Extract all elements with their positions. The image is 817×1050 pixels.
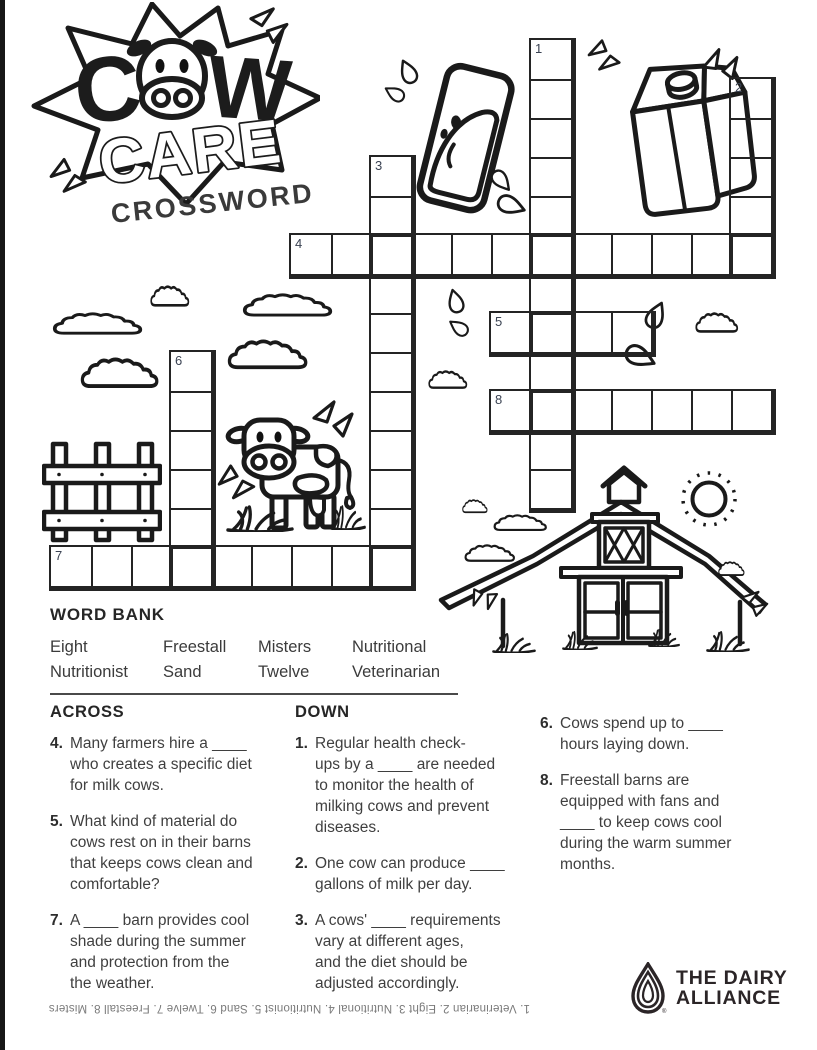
clue-number: 5. bbox=[50, 811, 70, 895]
grid-cell[interactable] bbox=[371, 430, 411, 469]
sparkle-icon bbox=[310, 398, 354, 442]
clue-number: 7. bbox=[50, 910, 70, 994]
word-bank-word: Sand bbox=[163, 663, 258, 682]
cloud-icon bbox=[242, 293, 334, 318]
word-5-across: 5 bbox=[489, 311, 656, 357]
fence-icon bbox=[42, 436, 162, 548]
grid-cell[interactable] bbox=[171, 547, 211, 586]
sun-icon bbox=[672, 464, 746, 538]
clue: 8.Freestall barns are equipped with fans… bbox=[540, 770, 780, 875]
grid-cell[interactable] bbox=[371, 196, 411, 235]
word-bank-word: Nutritionist bbox=[50, 663, 163, 682]
word-bank: WORD BANK EightFreestallMistersNutrition… bbox=[50, 605, 480, 682]
registered-mark: ® bbox=[662, 1008, 667, 1014]
clue: 5.What kind of material do cows rest on … bbox=[50, 811, 295, 895]
clue-column-down: DOWN1.Regular health check- ups by a ___… bbox=[295, 703, 540, 1009]
dairy-alliance-name: THE DAIRY ALLIANCE bbox=[676, 968, 788, 1009]
grid-cell[interactable] bbox=[171, 508, 211, 547]
cell-number: 1 bbox=[535, 42, 542, 55]
grid-cell[interactable] bbox=[731, 118, 771, 157]
cloud-icon bbox=[428, 370, 468, 390]
grid-cell[interactable] bbox=[611, 313, 651, 352]
grid-cell[interactable] bbox=[531, 274, 571, 313]
word-8-across: 8 bbox=[489, 389, 776, 435]
clue-text: One cow can produce ____ gallons of milk… bbox=[315, 853, 505, 895]
grid-cell[interactable] bbox=[371, 235, 411, 274]
cloud-icon bbox=[80, 357, 160, 390]
grid-cell[interactable] bbox=[731, 235, 771, 274]
grid-cell[interactable] bbox=[411, 235, 451, 274]
grass-icon bbox=[492, 632, 536, 653]
cloud-icon bbox=[493, 514, 548, 532]
cell-number: 2 bbox=[735, 81, 742, 94]
cloud-icon bbox=[718, 561, 745, 577]
grass-icon bbox=[706, 630, 750, 652]
word-bank-word: Freestall bbox=[163, 638, 258, 657]
grid-cell[interactable]: 6 bbox=[171, 352, 211, 391]
grid-cell[interactable] bbox=[731, 196, 771, 235]
clue-column-across: ACROSS4.Many farmers hire a ____ who cre… bbox=[50, 703, 295, 1009]
clue: 1.Regular health check- ups by a ____ ar… bbox=[295, 733, 540, 838]
answer-key: 1. Veterinarian 2. Eight 3. Nutritional … bbox=[52, 996, 530, 1014]
clue-number: 8. bbox=[540, 770, 560, 875]
grid-cell[interactable] bbox=[571, 235, 611, 274]
grid-cell[interactable] bbox=[331, 547, 371, 586]
clue-column-heading: ACROSS bbox=[50, 703, 295, 722]
grid-cell[interactable] bbox=[731, 391, 771, 430]
clue-text: Freestall barns are equipped with fans a… bbox=[560, 770, 731, 875]
grid-cell[interactable] bbox=[131, 547, 171, 586]
grid-cell[interactable] bbox=[251, 547, 291, 586]
cell-number: 6 bbox=[175, 354, 182, 367]
worksheet-page: C W CARE CROSSWORD bbox=[0, 0, 817, 1050]
clue: 3.A cows' ____ requirements vary at diff… bbox=[295, 910, 540, 994]
word-bank-word: Misters bbox=[258, 638, 352, 657]
clue-text: Cows spend up to ____ hours laying down. bbox=[560, 713, 723, 755]
grid-cell[interactable] bbox=[531, 79, 571, 118]
word-bank-word: Nutritional bbox=[352, 638, 480, 657]
milk-drop-icon: ® bbox=[628, 962, 668, 1014]
grid-cell[interactable] bbox=[571, 391, 611, 430]
word-7-across: 7 bbox=[49, 545, 416, 591]
clue-text: A ____ barn provides cool shade during t… bbox=[70, 910, 249, 994]
word-bank-divider bbox=[50, 693, 458, 695]
page-edge-line bbox=[0, 0, 5, 1050]
word-bank-word: Eight bbox=[50, 638, 163, 657]
word-bank-word: Twelve bbox=[258, 663, 352, 682]
grid-cell[interactable]: 3 bbox=[371, 157, 411, 196]
clue: 4.Many farmers hire a ____ who creates a… bbox=[50, 733, 295, 796]
cell-number: 4 bbox=[295, 237, 302, 250]
grid-cell[interactable] bbox=[531, 235, 571, 274]
grid-cell[interactable] bbox=[731, 157, 771, 196]
clue-text: Many farmers hire a ____ who creates a s… bbox=[70, 733, 252, 796]
clue-number: 4. bbox=[50, 733, 70, 796]
clue-number: 1. bbox=[295, 733, 315, 838]
grid-cell[interactable] bbox=[611, 235, 651, 274]
cloud-icon bbox=[150, 285, 190, 308]
grid-cell[interactable] bbox=[291, 547, 331, 586]
grid-cell[interactable] bbox=[171, 469, 211, 508]
grid-cell[interactable] bbox=[371, 391, 411, 430]
grid-cell[interactable] bbox=[651, 391, 691, 430]
word-bank-word: Veterinarian bbox=[352, 663, 480, 682]
grid-cell[interactable] bbox=[491, 235, 531, 274]
grid-cell[interactable] bbox=[451, 235, 491, 274]
clue-text: Regular health check- ups by a ____ are … bbox=[315, 733, 495, 838]
grid-cell[interactable]: 1 bbox=[531, 40, 571, 79]
word-3-down: 3 bbox=[369, 155, 416, 591]
grid-cell[interactable] bbox=[531, 313, 571, 352]
grid-cell[interactable]: 8 bbox=[491, 391, 531, 430]
clue-number: 2. bbox=[295, 853, 315, 895]
grid-cell[interactable] bbox=[371, 508, 411, 547]
word-4-across: 4 bbox=[289, 233, 776, 279]
clue: 7.A ____ barn provides cool shade during… bbox=[50, 910, 295, 994]
cloud-icon bbox=[52, 312, 144, 336]
clue-text: A cows' ____ requirements vary at differ… bbox=[315, 910, 501, 994]
grid-cell[interactable] bbox=[171, 430, 211, 469]
grid-cell[interactable] bbox=[531, 157, 571, 196]
grid-cell[interactable] bbox=[371, 313, 411, 352]
cloud-icon bbox=[462, 499, 488, 514]
grid-cell[interactable] bbox=[691, 391, 731, 430]
cell-number: 8 bbox=[495, 393, 502, 406]
clue-column-heading: DOWN bbox=[295, 703, 540, 722]
clue: 6.Cows spend up to ____ hours laying dow… bbox=[540, 713, 780, 755]
grid-cell[interactable] bbox=[531, 352, 571, 391]
grid-cell[interactable]: 5 bbox=[491, 313, 531, 352]
grid-cell[interactable] bbox=[531, 196, 571, 235]
grid-cell[interactable] bbox=[371, 274, 411, 313]
grid-cell[interactable] bbox=[691, 235, 731, 274]
sparkle-icon bbox=[215, 459, 261, 505]
grid-cell[interactable] bbox=[531, 391, 571, 430]
cloud-icon bbox=[464, 544, 516, 563]
grid-cell[interactable] bbox=[531, 430, 571, 469]
grass-icon bbox=[330, 504, 366, 530]
grid-cell[interactable] bbox=[371, 547, 411, 586]
grid-cell[interactable]: 4 bbox=[291, 235, 331, 274]
grid-cell[interactable] bbox=[611, 391, 651, 430]
clue-text: What kind of material do cows rest on in… bbox=[70, 811, 253, 895]
splash-drop-icon bbox=[443, 286, 468, 316]
grass-icon bbox=[226, 504, 294, 532]
clue: 2.One cow can produce ____ gallons of mi… bbox=[295, 853, 540, 895]
grid-cell[interactable] bbox=[211, 547, 251, 586]
grid-cell[interactable] bbox=[651, 235, 691, 274]
grid-cell[interactable] bbox=[531, 469, 571, 508]
splash-drop-icon bbox=[444, 314, 473, 341]
cell-number: 7 bbox=[55, 549, 62, 562]
cloud-icon bbox=[695, 312, 739, 334]
grid-cell[interactable]: 7 bbox=[51, 547, 91, 586]
cloud-icon bbox=[227, 339, 309, 371]
grid-cell[interactable] bbox=[91, 547, 131, 586]
dairy-alliance-logo: ® THE DAIRY ALLIANCE bbox=[628, 962, 788, 1014]
clue-number: 3. bbox=[295, 910, 315, 994]
grid-cell[interactable] bbox=[371, 352, 411, 391]
cell-number: 5 bbox=[495, 315, 502, 328]
grass-icon bbox=[562, 630, 598, 650]
grid-cell[interactable] bbox=[371, 469, 411, 508]
grid-cell[interactable]: 2 bbox=[731, 79, 771, 118]
grid-cell[interactable] bbox=[171, 391, 211, 430]
grid-cell[interactable] bbox=[531, 118, 571, 157]
word-bank-title: WORD BANK bbox=[50, 605, 480, 625]
grid-cell[interactable] bbox=[571, 313, 611, 352]
grid-cell[interactable] bbox=[331, 235, 371, 274]
cell-number: 3 bbox=[375, 159, 382, 172]
clue-number: 6. bbox=[540, 713, 560, 755]
grass-icon bbox=[648, 628, 680, 647]
